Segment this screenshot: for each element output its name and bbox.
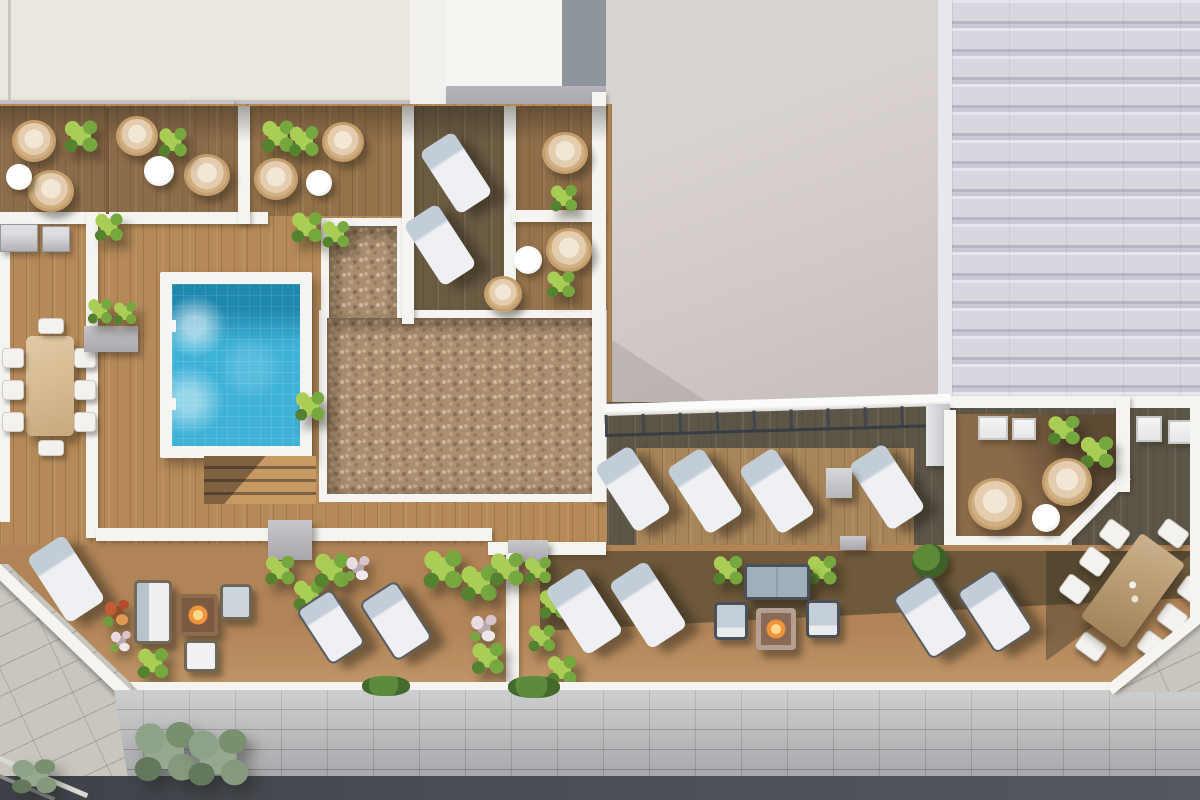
fire-pit-table bbox=[178, 594, 218, 636]
dining-chair bbox=[1078, 545, 1112, 578]
hedge bbox=[362, 676, 410, 696]
hanging-egg-chair bbox=[322, 122, 364, 162]
dining-chair bbox=[74, 412, 96, 432]
skylight bbox=[978, 416, 1008, 440]
flowering-shrub bbox=[338, 548, 378, 588]
dining-table-west bbox=[26, 336, 74, 436]
pool-ladder bbox=[168, 398, 176, 410]
skylight bbox=[1012, 418, 1036, 440]
round-bush bbox=[912, 544, 948, 578]
street-tree bbox=[0, 750, 68, 800]
dining-chair bbox=[38, 318, 64, 334]
planter-box bbox=[840, 536, 866, 550]
dining-chair bbox=[1098, 518, 1132, 551]
sofa bbox=[134, 580, 172, 644]
dining-chair bbox=[2, 348, 24, 368]
palm-plant bbox=[130, 640, 176, 686]
building-facade bbox=[98, 690, 1200, 778]
dining-chair bbox=[74, 380, 96, 400]
pebble-garden-slab bbox=[327, 318, 599, 494]
dining-chair bbox=[1058, 573, 1092, 606]
fire-pit-table bbox=[756, 608, 796, 650]
potted-palm bbox=[288, 384, 332, 428]
pool-water bbox=[172, 284, 300, 446]
hanging-egg-chair bbox=[542, 132, 588, 174]
potted-palm bbox=[56, 112, 106, 160]
potted-palm bbox=[544, 178, 584, 218]
terrace-parapet bbox=[0, 212, 268, 224]
hanging-egg-chair bbox=[12, 120, 56, 162]
armchair bbox=[184, 640, 218, 672]
potted-palm bbox=[540, 264, 582, 304]
dining-chair bbox=[38, 440, 64, 456]
dining-chair bbox=[2, 380, 24, 400]
roof-seam-line bbox=[8, 0, 11, 100]
dining-chair bbox=[2, 412, 24, 432]
potted-palm bbox=[282, 118, 326, 164]
side-table-round bbox=[144, 156, 174, 186]
street-tree bbox=[172, 714, 264, 800]
east-boundary-wall bbox=[592, 92, 606, 502]
blank-facade-wall bbox=[606, 0, 942, 420]
neighbor-building-gray bbox=[562, 0, 608, 94]
armchair bbox=[714, 602, 748, 640]
pool-ladder bbox=[168, 320, 176, 332]
sofa bbox=[744, 564, 810, 600]
planter-box bbox=[84, 326, 138, 352]
side-table bbox=[826, 468, 852, 498]
hanging-egg-chair bbox=[968, 478, 1022, 530]
side-table-round bbox=[306, 170, 332, 196]
hanging-egg-chair bbox=[254, 158, 298, 200]
parapet-wall bbox=[410, 0, 448, 120]
neighbor-roof-cream bbox=[0, 0, 428, 102]
potted-palm bbox=[108, 296, 142, 330]
east-parapet-wall bbox=[1190, 400, 1200, 620]
east-parapet bbox=[938, 396, 1200, 408]
palm-plant bbox=[464, 634, 512, 682]
outdoor-kitchen-unit bbox=[42, 226, 70, 252]
ribbed-roof bbox=[952, 0, 1200, 402]
side-table-round bbox=[1032, 504, 1060, 532]
roof-terrace-upper bbox=[446, 0, 564, 94]
side-table-round bbox=[6, 164, 32, 190]
outdoor-kitchen-unit bbox=[0, 224, 38, 252]
potted-palm bbox=[316, 214, 356, 254]
hanging-egg-chair bbox=[28, 170, 74, 212]
hanging-egg-chair bbox=[1042, 458, 1092, 506]
side-table-round bbox=[514, 246, 542, 274]
private-corner-wall bbox=[944, 410, 956, 548]
skylight bbox=[1136, 416, 1162, 442]
armchair bbox=[220, 584, 252, 620]
hedge bbox=[508, 676, 560, 698]
hanging-egg-chair bbox=[484, 276, 522, 312]
pool-terrace-wall bbox=[86, 212, 98, 538]
dining-chair bbox=[1156, 517, 1190, 550]
dining-chair bbox=[1074, 630, 1108, 663]
potted-plant bbox=[88, 206, 130, 248]
rooftop-aerial-render bbox=[0, 0, 1200, 800]
armchair bbox=[806, 600, 840, 638]
hanging-egg-chair bbox=[184, 154, 230, 196]
